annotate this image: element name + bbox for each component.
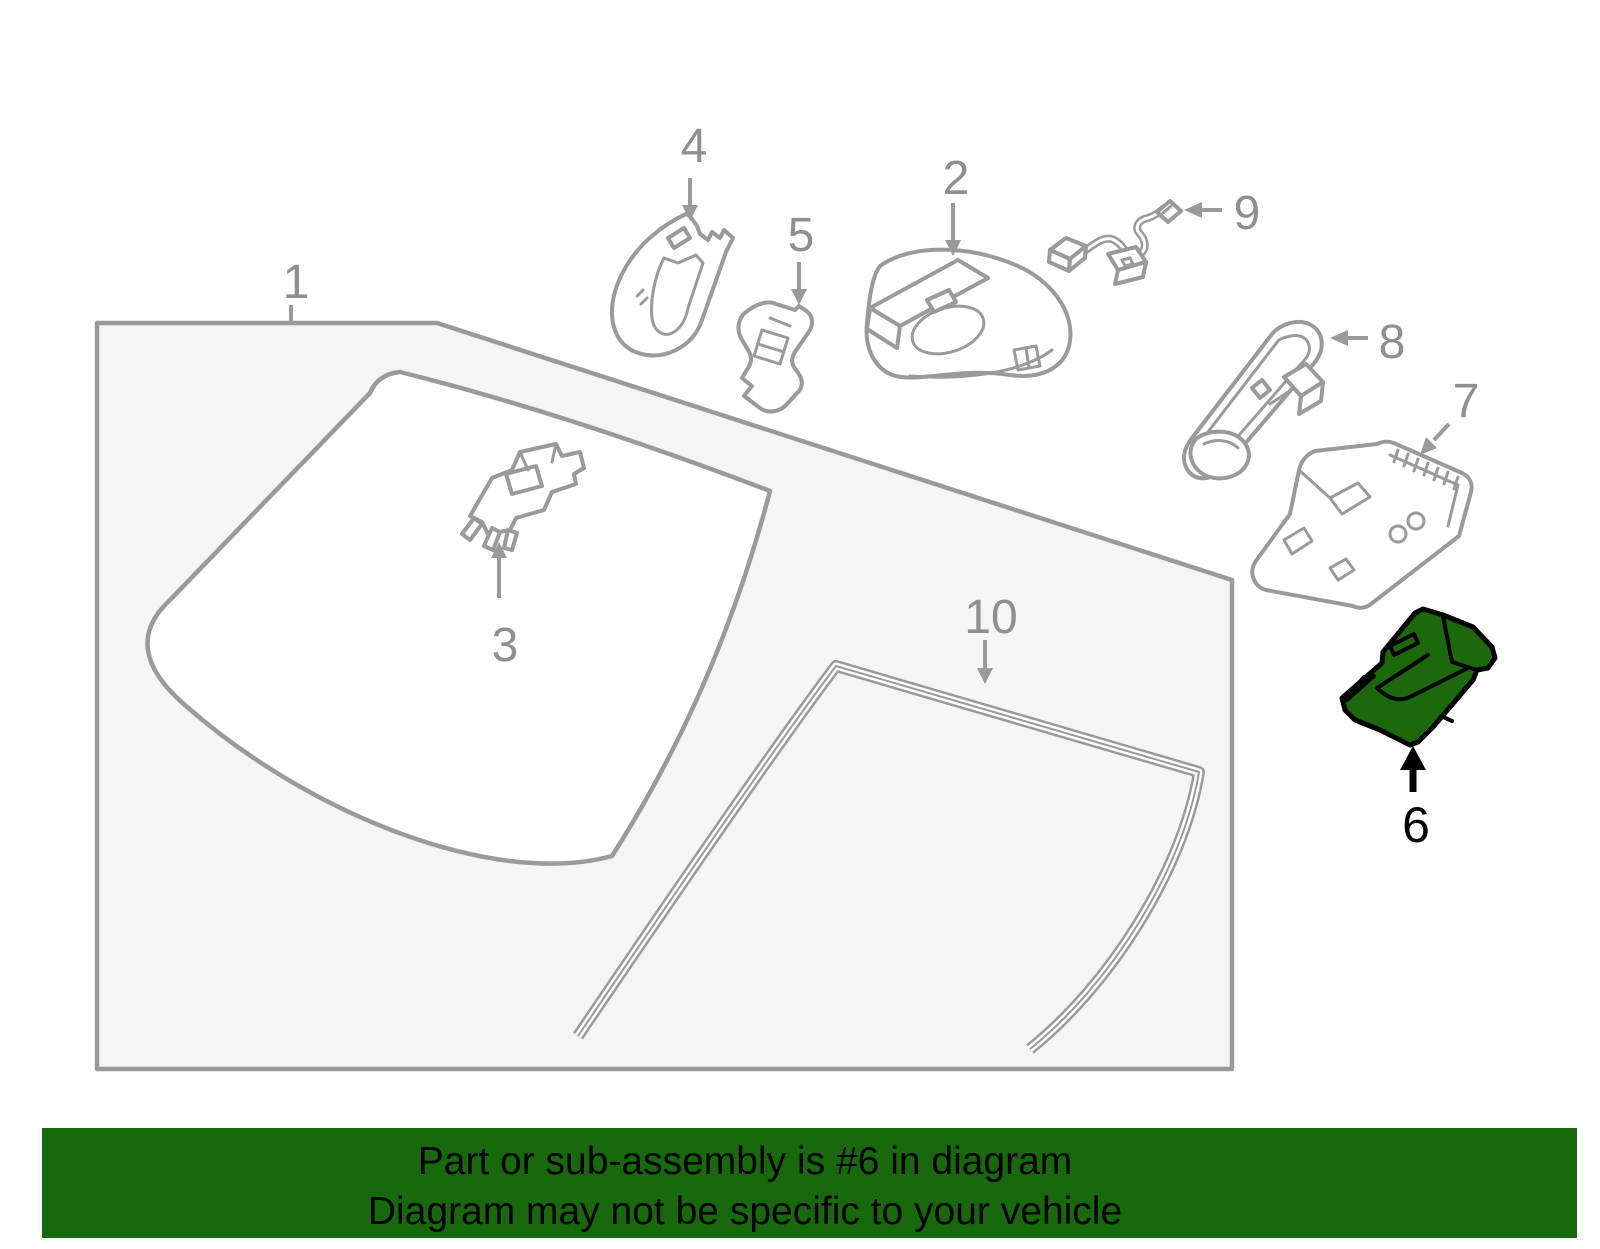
info-banner: Part or sub-assembly is #6 in diagram Di… — [42, 1128, 1577, 1238]
support-bracket-group[interactable]: 5 — [739, 209, 815, 411]
parts-diagram-page: 1 10 3 4 5 — [0, 0, 1600, 1249]
highlighted-sensor-module-group[interactable]: 6 — [1342, 609, 1495, 853]
callout-6-label[interactable]: 6 — [1402, 797, 1430, 853]
callout-7-label[interactable]: 7 — [1453, 375, 1480, 428]
info-banner-line1: Part or sub-assembly is #6 in diagram — [418, 1140, 1073, 1183]
callout-5-arrowhead — [791, 289, 807, 305]
callout-1-label[interactable]: 1 — [283, 256, 310, 309]
callout-7-arrow — [1434, 424, 1449, 440]
mounting-bracket-group[interactable]: 7 — [1252, 375, 1479, 608]
callout-3-label[interactable]: 3 — [492, 619, 519, 672]
mirror-cover-group[interactable]: 4 — [612, 120, 733, 355]
callout-10-label[interactable]: 10 — [964, 591, 1017, 644]
diagram-canvas: 1 10 3 4 5 — [0, 0, 1600, 1249]
callout-5-label[interactable]: 5 — [788, 209, 815, 262]
harness-8-pad — [1190, 432, 1248, 479]
callout-2-label[interactable]: 2 — [943, 152, 970, 205]
rearview-mirror-group[interactable]: 2 — [867, 152, 1071, 377]
mounting-bracket-plate[interactable] — [1252, 442, 1471, 608]
callout-9-arrowhead — [1184, 202, 1202, 218]
callout-8-arrowhead — [1330, 330, 1348, 346]
info-banner-line2: Diagram may not be specific to your vehi… — [368, 1190, 1122, 1233]
callout-8-label[interactable]: 8 — [1379, 316, 1406, 369]
callout-6-arrowhead — [1400, 746, 1426, 770]
callout-9-label[interactable]: 9 — [1234, 187, 1261, 240]
wiring-harness-9-group[interactable]: 9 — [1049, 187, 1260, 284]
harness-9-connector-top[interactable] — [1157, 201, 1181, 222]
callout-4-label[interactable]: 4 — [681, 120, 708, 173]
